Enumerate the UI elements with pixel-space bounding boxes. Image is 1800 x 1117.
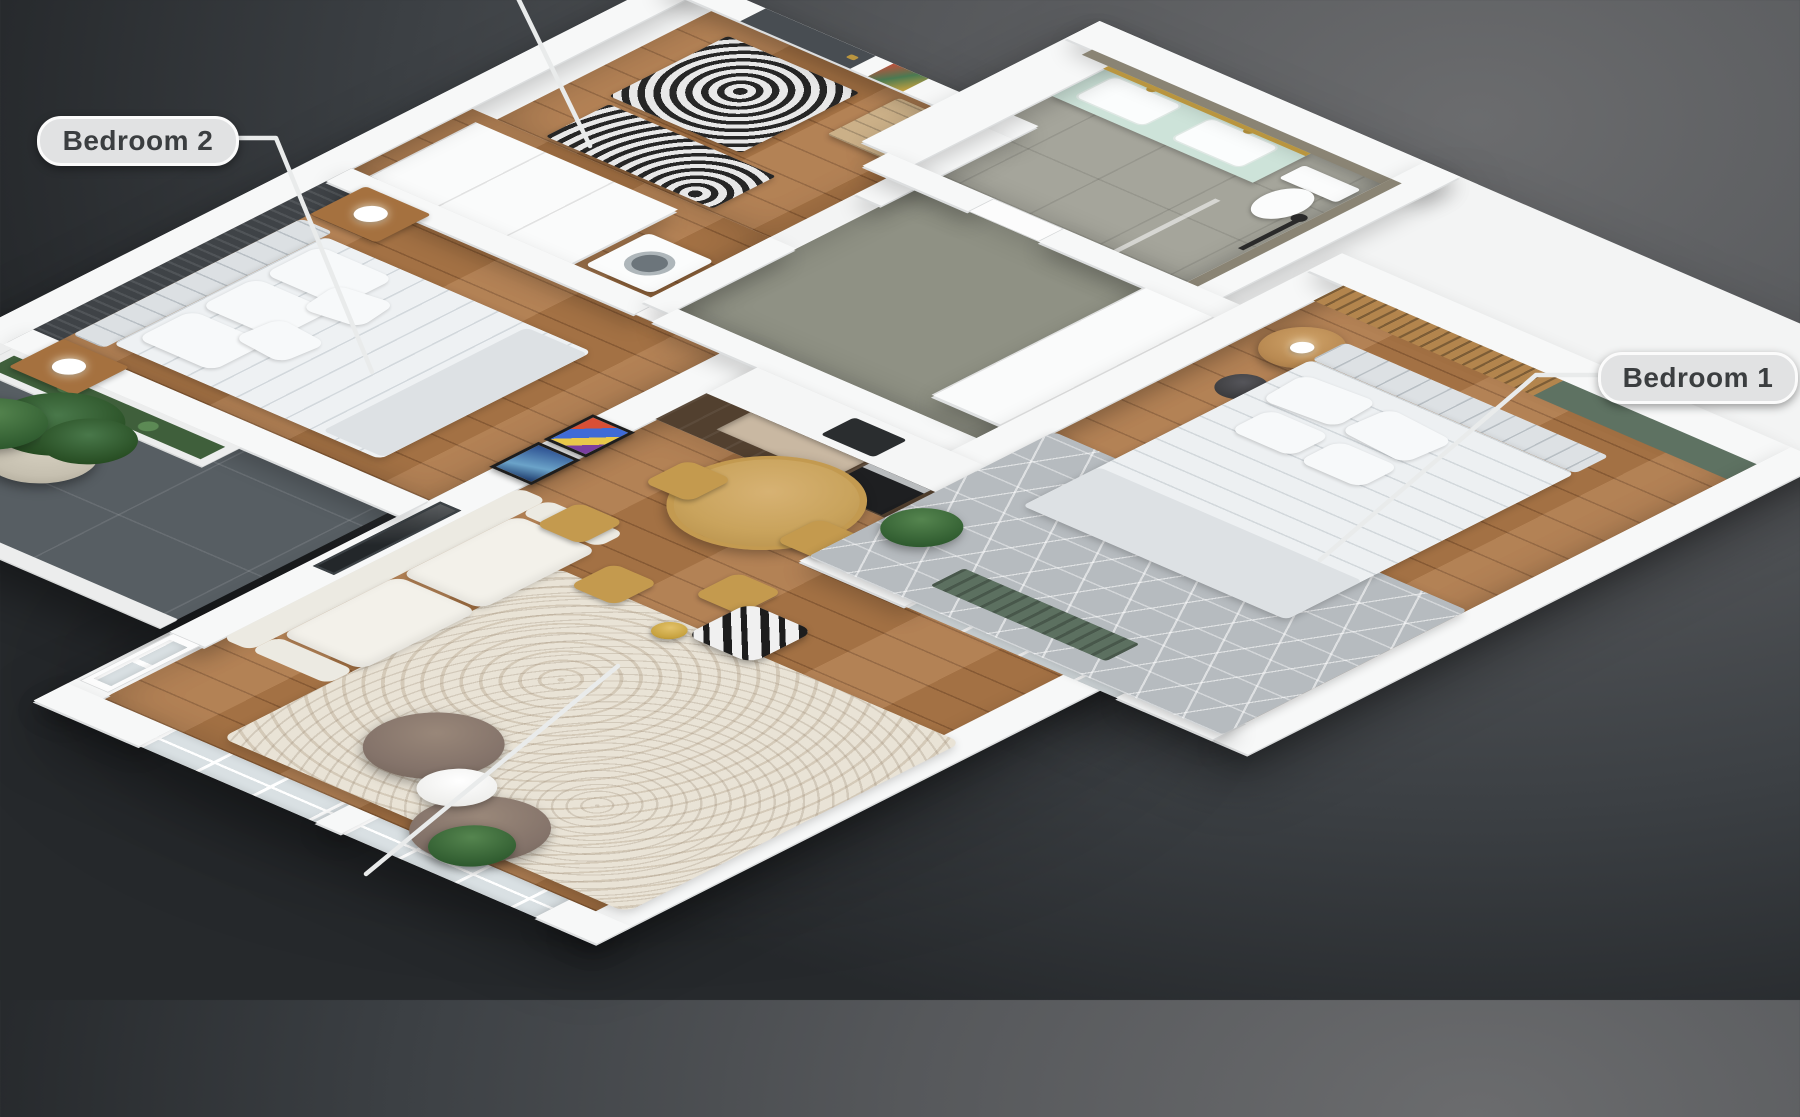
floorplan-scene: Bedroom 2 Bedroom 1 [0, 0, 1800, 1000]
bedroom1-label[interactable]: Bedroom 1 [1598, 352, 1798, 404]
bedroom1-label-text: Bedroom 1 [1623, 362, 1774, 394]
bedroom2-label[interactable]: Bedroom 2 [37, 116, 239, 166]
isometric-plan [0, 0, 1800, 1117]
bedroom2-label-text: Bedroom 2 [63, 125, 214, 157]
